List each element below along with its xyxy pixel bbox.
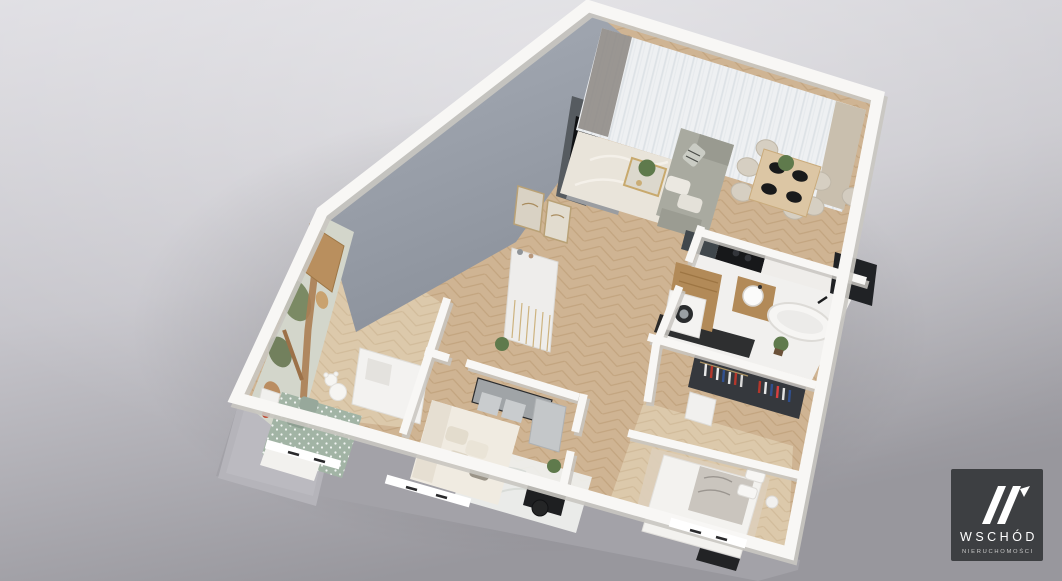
- picture-frame: [544, 200, 571, 243]
- nightstand: [766, 496, 778, 508]
- gray-cabinet: [529, 398, 566, 452]
- desk-chair: [532, 500, 548, 516]
- watermark-logo: WSCHÓD NIERUCHOMOŚCI: [951, 469, 1043, 561]
- gold-decor: [636, 180, 642, 186]
- logo-tagline: NIERUCHOMOŚCI: [962, 547, 1034, 555]
- logo-box: [951, 469, 1043, 561]
- centerpiece-plant: [778, 155, 794, 171]
- console-decor: [517, 249, 523, 255]
- faucet: [758, 285, 762, 289]
- study-plant: [547, 459, 561, 473]
- logo-name: WSCHÓD: [960, 529, 1038, 544]
- floor-plan-render: WSCHÓD NIERUCHOMOŚCI: [0, 0, 1062, 581]
- plant-on-table: [639, 160, 656, 177]
- scene-canvas: WSCHÓD NIERUCHOMOŚCI: [0, 0, 1062, 581]
- picture-frame: [514, 186, 544, 232]
- plant-by-console: [495, 337, 509, 351]
